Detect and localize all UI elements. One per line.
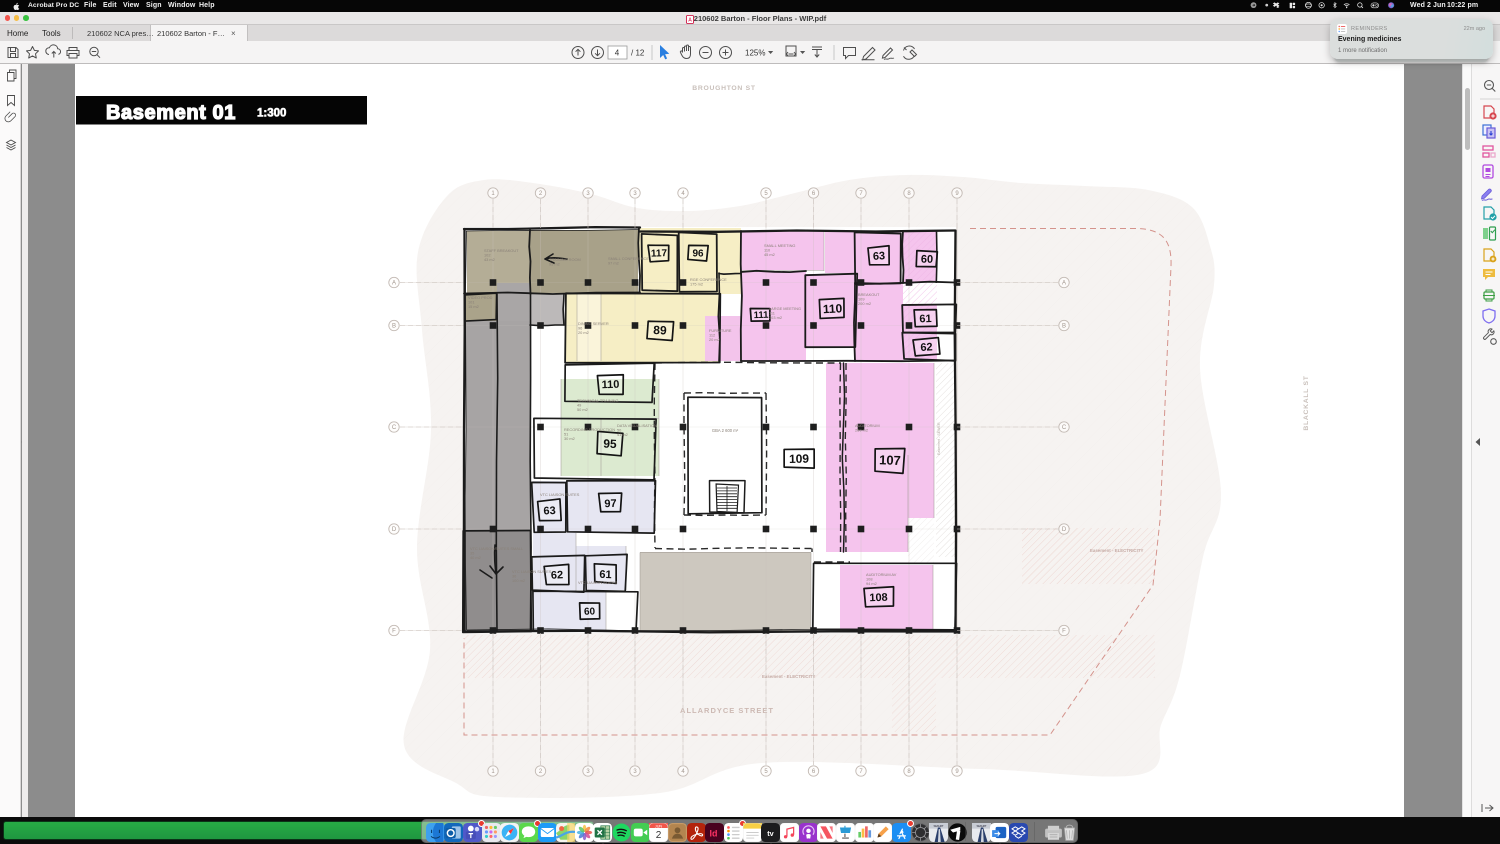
svg-text:JUN: JUN (655, 824, 663, 828)
svg-text:F: F (1062, 629, 1066, 635)
svg-text:117: 117 (651, 248, 668, 260)
svg-text:SMART: SMART (976, 824, 986, 828)
svg-text:96: 96 (692, 248, 704, 259)
svg-text:/ 12: / 12 (631, 49, 645, 58)
svg-text:D: D (392, 527, 397, 533)
svg-text:110: 110 (601, 379, 619, 392)
svg-text:95: 95 (603, 436, 617, 451)
svg-text:Id: Id (710, 828, 718, 838)
svg-text:60: 60 (921, 253, 934, 265)
svg-text:109: 109 (789, 452, 810, 466)
svg-text:62: 62 (551, 569, 564, 581)
svg-text:Basement 01: Basement 01 (106, 102, 236, 124)
svg-text:A: A (392, 281, 396, 287)
svg-text:VTC LIAISON SUITES: VTC LIAISON SUITES (540, 492, 580, 497)
svg-text:63: 63 (873, 250, 886, 263)
svg-text:C: C (1062, 425, 1067, 431)
svg-text:B: B (1062, 324, 1066, 330)
svg-text:BLACKALL ST: BLACKALL ST (1303, 375, 1310, 430)
svg-text:A: A (1062, 281, 1066, 287)
svg-text:62: 62 (920, 341, 933, 354)
svg-text:97: 97 (604, 498, 617, 510)
svg-text:60: 60 (584, 606, 596, 617)
svg-text:ALLARDYCE STREET: ALLARDYCE STREET (680, 706, 774, 715)
svg-text:C: C (392, 425, 397, 431)
svg-text:4: 4 (615, 49, 620, 58)
svg-text:110: 110 (823, 301, 843, 316)
svg-text:1:300: 1:300 (257, 108, 286, 120)
svg-text:Easement - ELECTRICITY: Easement - ELECTRICITY (762, 674, 816, 679)
svg-text:BROUGHTON ST: BROUGHTON ST (692, 85, 756, 92)
svg-text:F: F (392, 629, 396, 635)
svg-text:89: 89 (653, 323, 667, 337)
svg-text:107: 107 (879, 452, 901, 468)
svg-text:61: 61 (919, 313, 932, 325)
svg-text:VTC LIAISON SUITES: VTC LIAISON SUITES (578, 580, 618, 585)
svg-text:tv: tv (768, 829, 774, 838)
svg-text:Easement - ELECTRICITY: Easement - ELECTRICITY (1090, 548, 1144, 553)
svg-text:125%: 125% (745, 49, 765, 58)
svg-text:63: 63 (543, 505, 556, 518)
svg-text:108: 108 (869, 592, 888, 605)
svg-text:D: D (1062, 527, 1067, 533)
svg-text:SMART: SMART (934, 824, 944, 828)
svg-text:111: 111 (753, 310, 769, 322)
svg-text:GBA 2 600 m²: GBA 2 600 m² (712, 428, 739, 433)
svg-text:B: B (392, 324, 396, 330)
svg-text:2: 2 (656, 830, 662, 841)
